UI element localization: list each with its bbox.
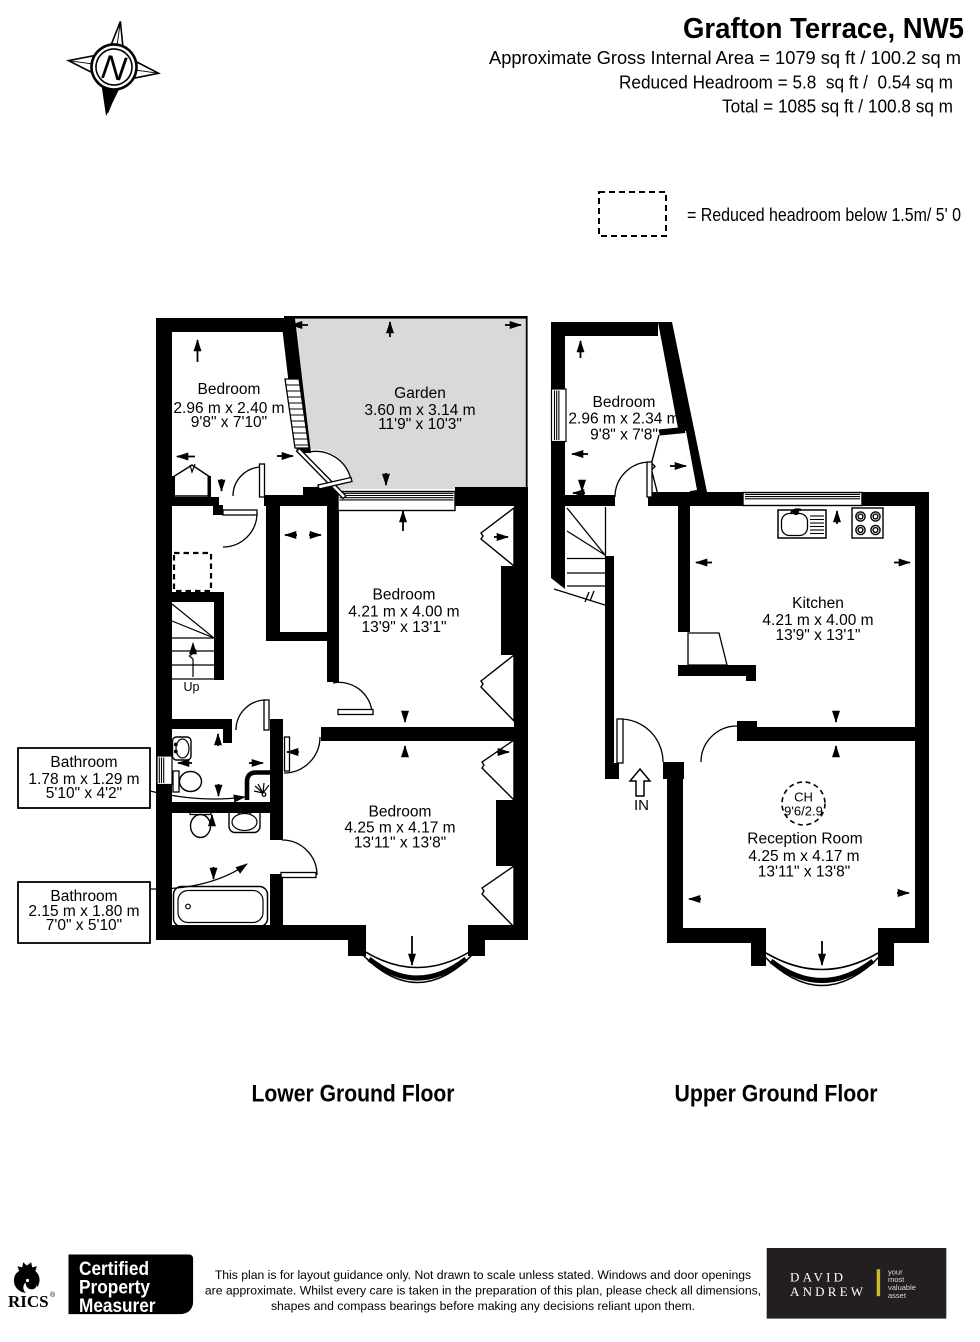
svg-text:IN: IN — [634, 797, 649, 814]
svg-text:Garden: Garden — [394, 385, 446, 402]
svg-text:are approximate. Whilst every: are approximate. Whilst every care is ta… — [205, 1284, 761, 1298]
svg-text:Total = 1085 sq ft / 100.8 s: Total = 1085 sq ft / 100.8 sq m — [722, 96, 953, 117]
svg-text:Grafton Terrace, NW5: Grafton Terrace, NW5 — [683, 13, 964, 45]
svg-text:13'11" x 13'8": 13'11" x 13'8" — [758, 864, 850, 881]
svg-text:Bedroom: Bedroom — [593, 394, 656, 411]
svg-text:Reception Room: Reception Room — [747, 831, 862, 848]
svg-text:®: ® — [50, 1291, 56, 1299]
svg-text:13'9" x 13'1": 13'9" x 13'1" — [361, 619, 446, 636]
svg-text:Reduced Headroom = 5.8 sq ft: Reduced Headroom = 5.8 sq ft / 0.54 sq m — [619, 72, 953, 93]
svg-text:Kitchen: Kitchen — [792, 595, 844, 612]
svg-text:Up: Up — [184, 680, 200, 694]
svg-text:asset: asset — [888, 1291, 907, 1300]
svg-text:5'10" x 4'2": 5'10" x 4'2" — [46, 785, 122, 802]
svg-text:9'8" x 7'10": 9'8" x 7'10" — [191, 414, 267, 431]
svg-text:7'0" x 5'10": 7'0" x 5'10" — [46, 917, 122, 934]
svg-text:2.96 m x 2.34 m: 2.96 m x 2.34 m — [568, 411, 679, 428]
svg-text:CH: CH — [794, 790, 813, 805]
svg-text:Upper Ground Floor: Upper Ground Floor — [675, 1081, 878, 1108]
svg-text:Measurer: Measurer — [79, 1296, 156, 1317]
svg-text:Bedroom: Bedroom — [373, 587, 436, 604]
svg-text:DAVID: DAVID — [790, 1270, 846, 1285]
svg-text:13'11" x 13'8": 13'11" x 13'8" — [354, 835, 446, 852]
svg-text:Approximate Gross Internal Are: Approximate Gross Internal Area = 1079 s… — [489, 47, 961, 68]
svg-text:ANDREW: ANDREW — [790, 1284, 866, 1299]
svg-text:11'9" x 10'3": 11'9" x 10'3" — [378, 416, 462, 433]
svg-text:Lower Ground Floor: Lower Ground Floor — [252, 1081, 455, 1108]
svg-text:9'6/2.9: 9'6/2.9 — [784, 804, 823, 819]
svg-text:Bedroom: Bedroom — [369, 804, 432, 821]
svg-text:Bathroom: Bathroom — [50, 754, 117, 771]
svg-text:This plan is for layout guidan: This plan is for layout guidance only. N… — [215, 1268, 751, 1282]
svg-text:4.21 m x 4.00 m: 4.21 m x 4.00 m — [348, 604, 459, 621]
svg-text:4.25 m x 4.17 m: 4.25 m x 4.17 m — [748, 848, 859, 865]
svg-text:= Reduced headroom below 1.5m/: = Reduced headroom below 1.5m/ 5' 0 — [687, 204, 961, 225]
svg-text:shapes and compass bearings be: shapes and compass bearings before makin… — [271, 1299, 695, 1313]
svg-text:13'9" x 13'1": 13'9" x 13'1" — [775, 627, 860, 644]
svg-text:Bedroom: Bedroom — [198, 381, 261, 398]
svg-text:9'8" x 7'8": 9'8" x 7'8" — [590, 427, 658, 444]
svg-text:RICS: RICS — [8, 1292, 49, 1311]
